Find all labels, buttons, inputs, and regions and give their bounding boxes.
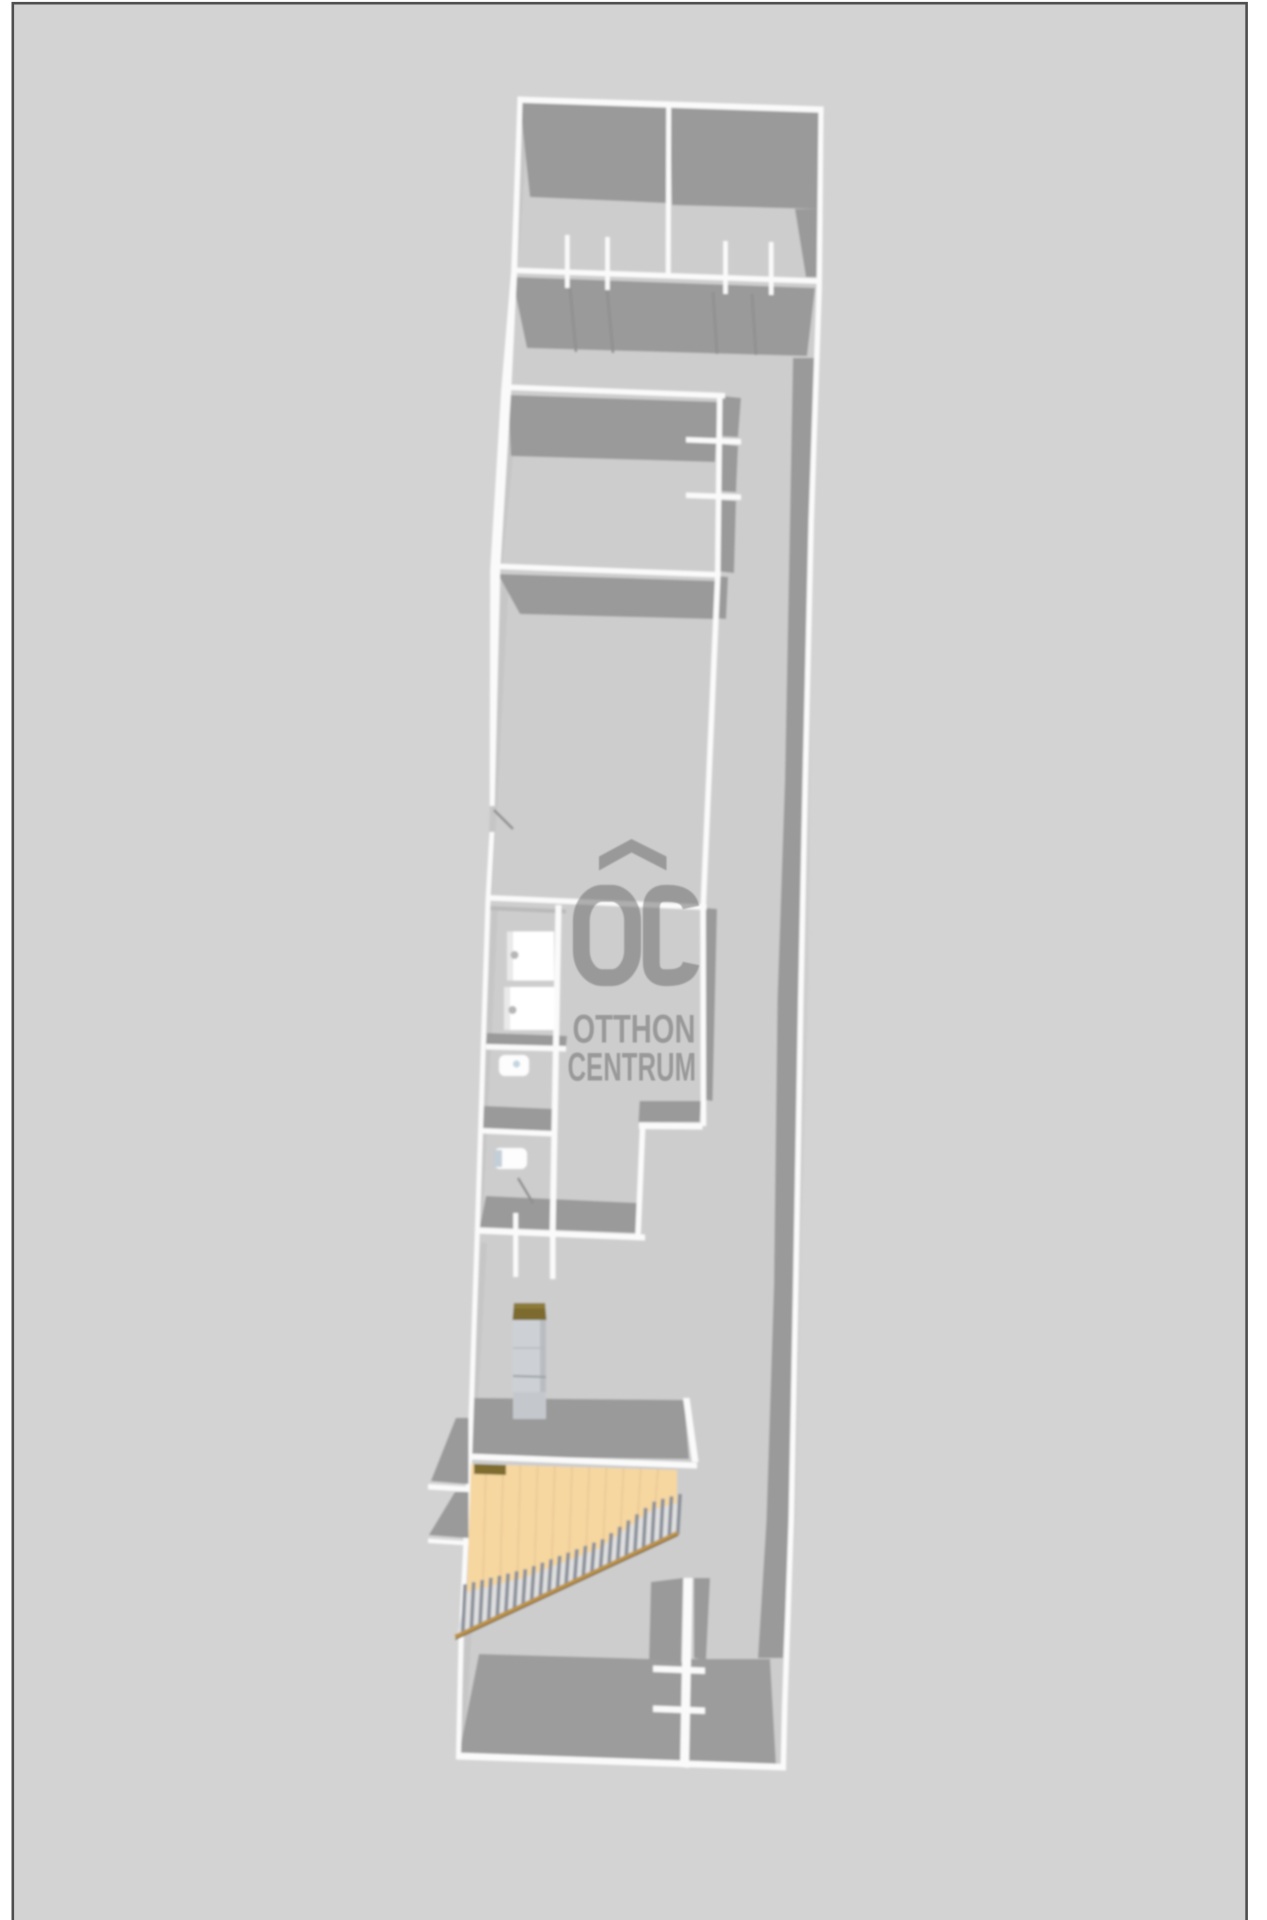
svg-text:CENTRUM: CENTRUM bbox=[568, 1046, 697, 1090]
